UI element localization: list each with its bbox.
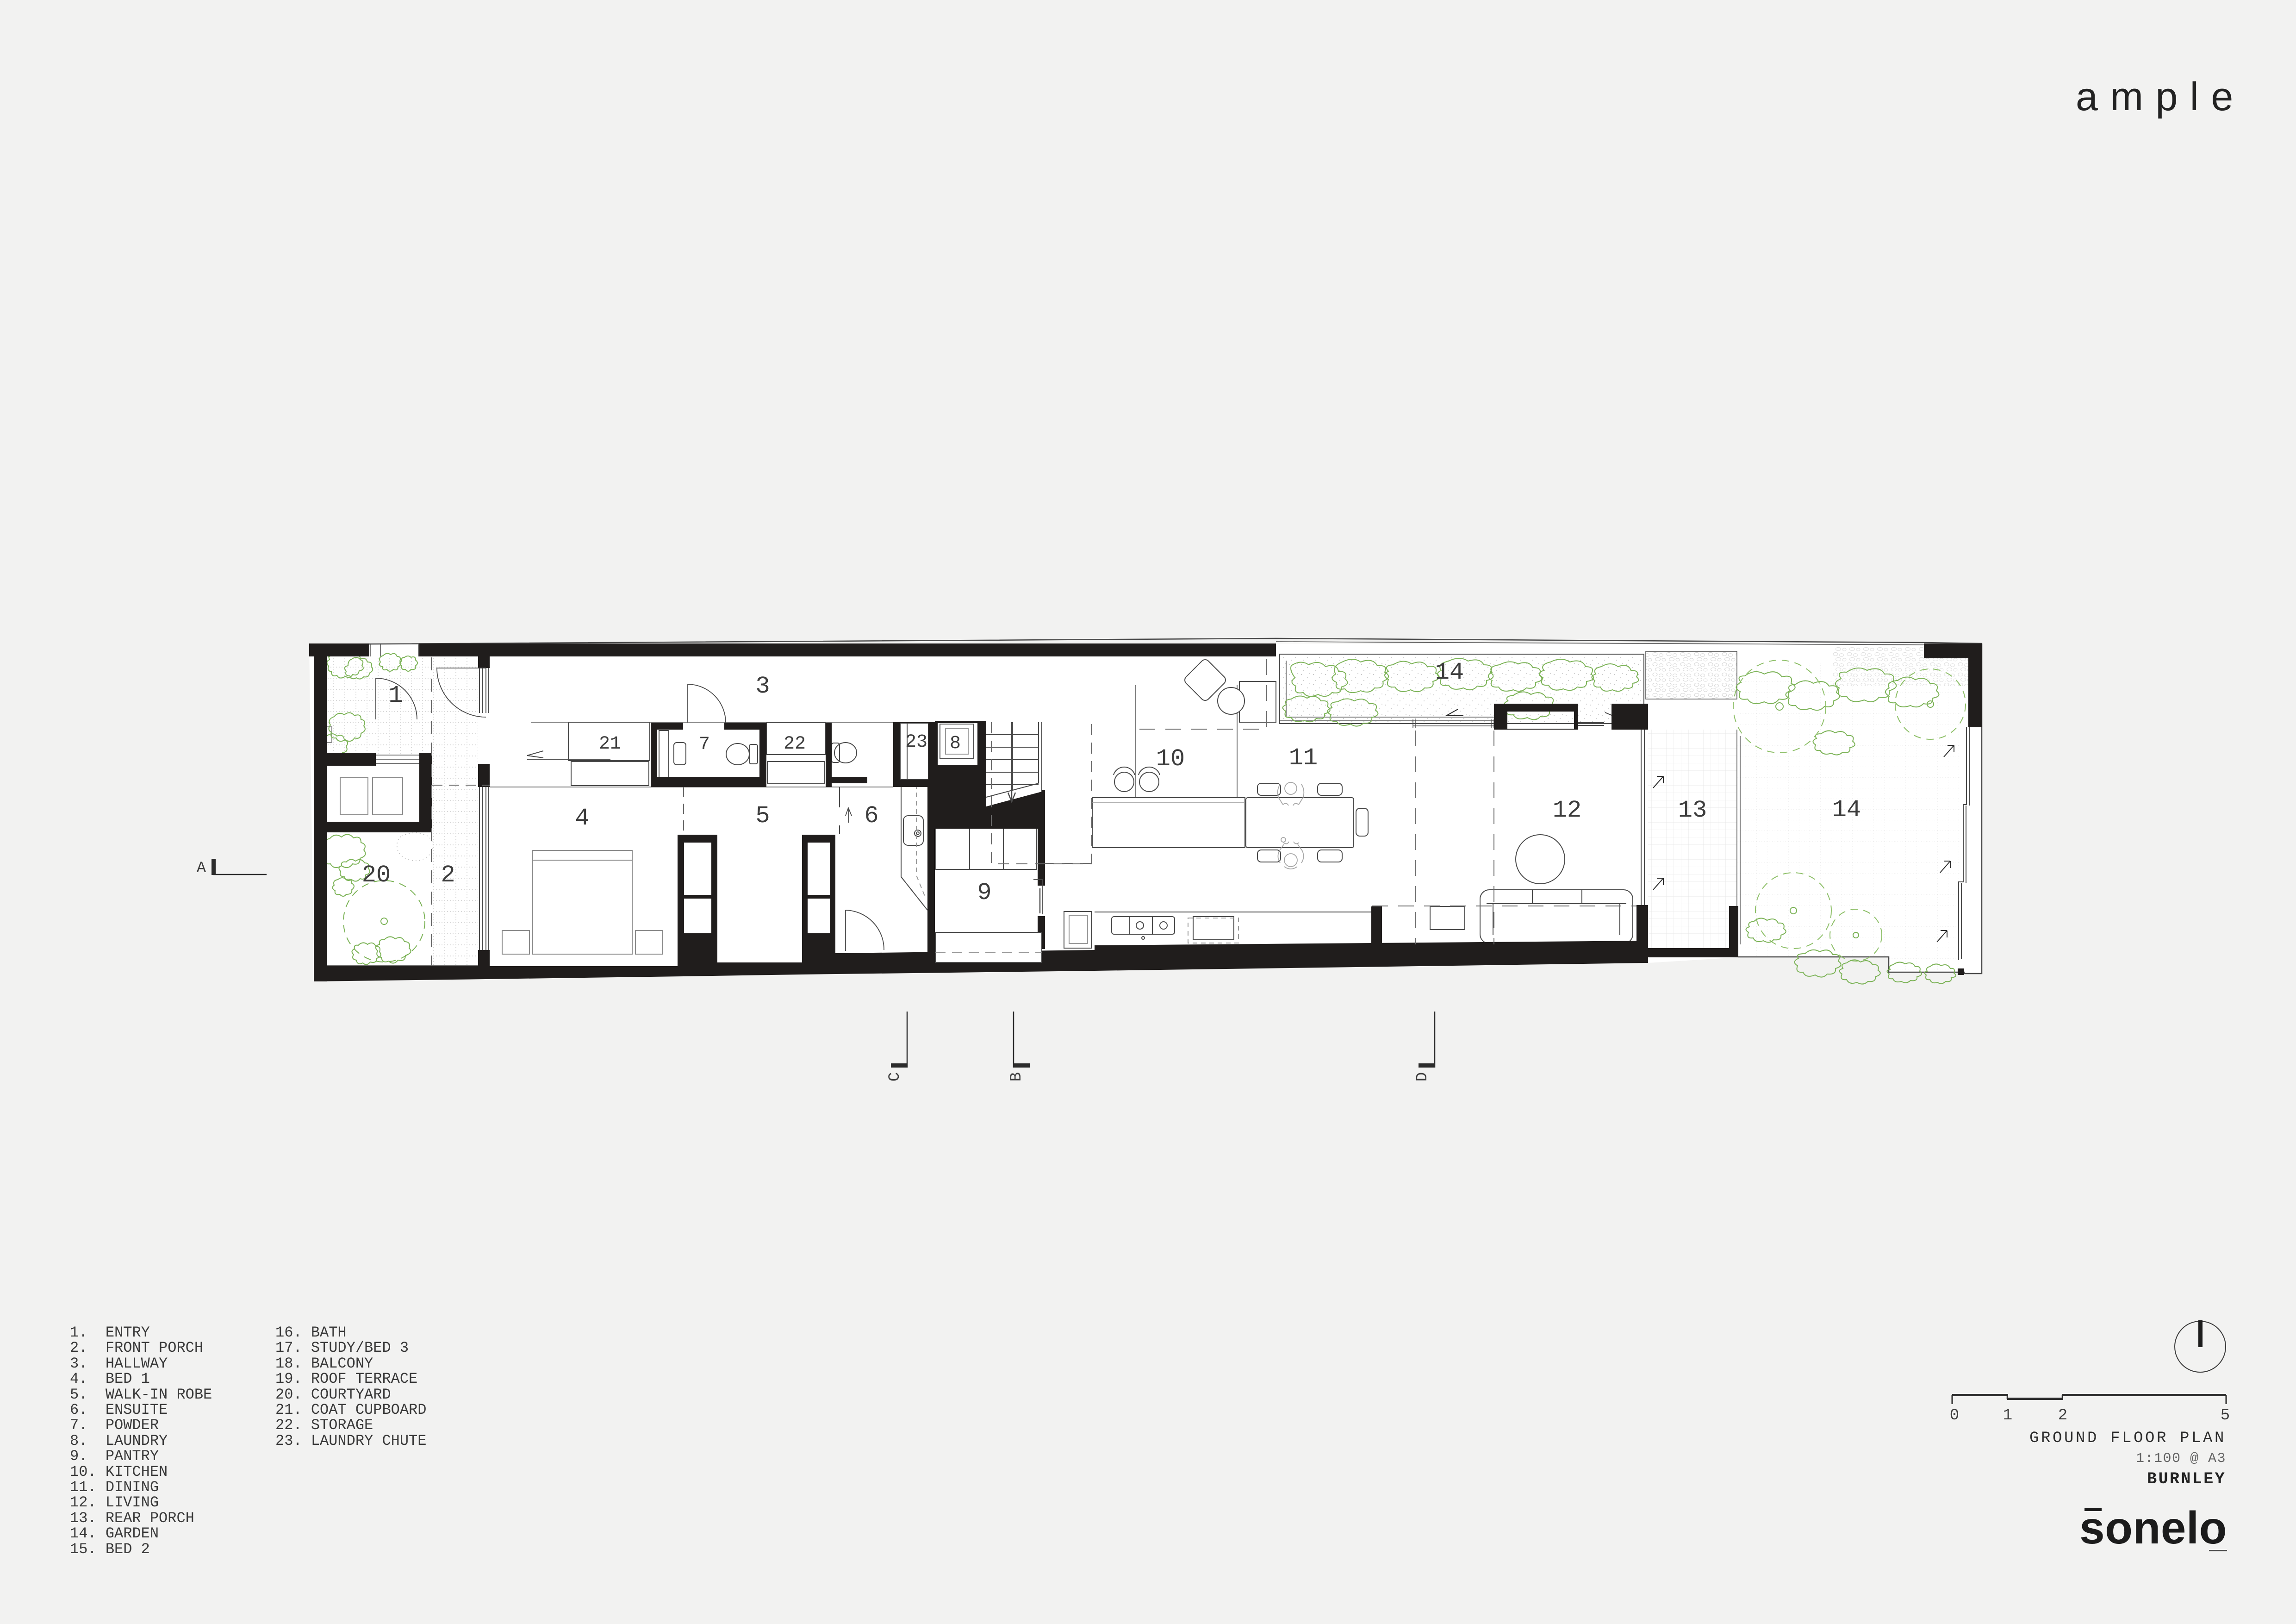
- svg-text:9: 9: [977, 879, 991, 906]
- svg-text:C: C: [886, 1072, 904, 1081]
- svg-text:3: 3: [755, 673, 770, 700]
- svg-text:10: 10: [1156, 745, 1185, 773]
- svg-text:4: 4: [575, 805, 589, 832]
- svg-text:13: 13: [1678, 797, 1707, 824]
- svg-text:1: 1: [2003, 1407, 2012, 1424]
- svg-text:D: D: [1414, 1072, 1431, 1081]
- svg-text:14: 14: [1832, 796, 1861, 824]
- svg-text:11: 11: [1289, 744, 1318, 772]
- svg-text:21: 21: [599, 734, 621, 755]
- svg-text:5: 5: [755, 802, 770, 830]
- svg-text:5: 5: [2221, 1407, 2230, 1424]
- svg-text:22: 22: [784, 734, 806, 755]
- svg-text:7: 7: [699, 734, 710, 755]
- svg-text:A: A: [197, 860, 206, 877]
- svg-text:2: 2: [441, 862, 455, 889]
- svg-text:20: 20: [362, 862, 391, 889]
- svg-text:B: B: [1008, 1072, 1026, 1081]
- svg-text:12: 12: [1553, 797, 1581, 824]
- svg-text:0: 0: [1950, 1407, 1959, 1424]
- svg-text:6: 6: [864, 802, 878, 830]
- svg-text:23: 23: [905, 732, 927, 753]
- svg-text:14: 14: [1435, 659, 1464, 686]
- svg-text:2: 2: [2058, 1407, 2067, 1424]
- svg-text:1: 1: [388, 682, 403, 709]
- svg-text:8: 8: [950, 733, 961, 754]
